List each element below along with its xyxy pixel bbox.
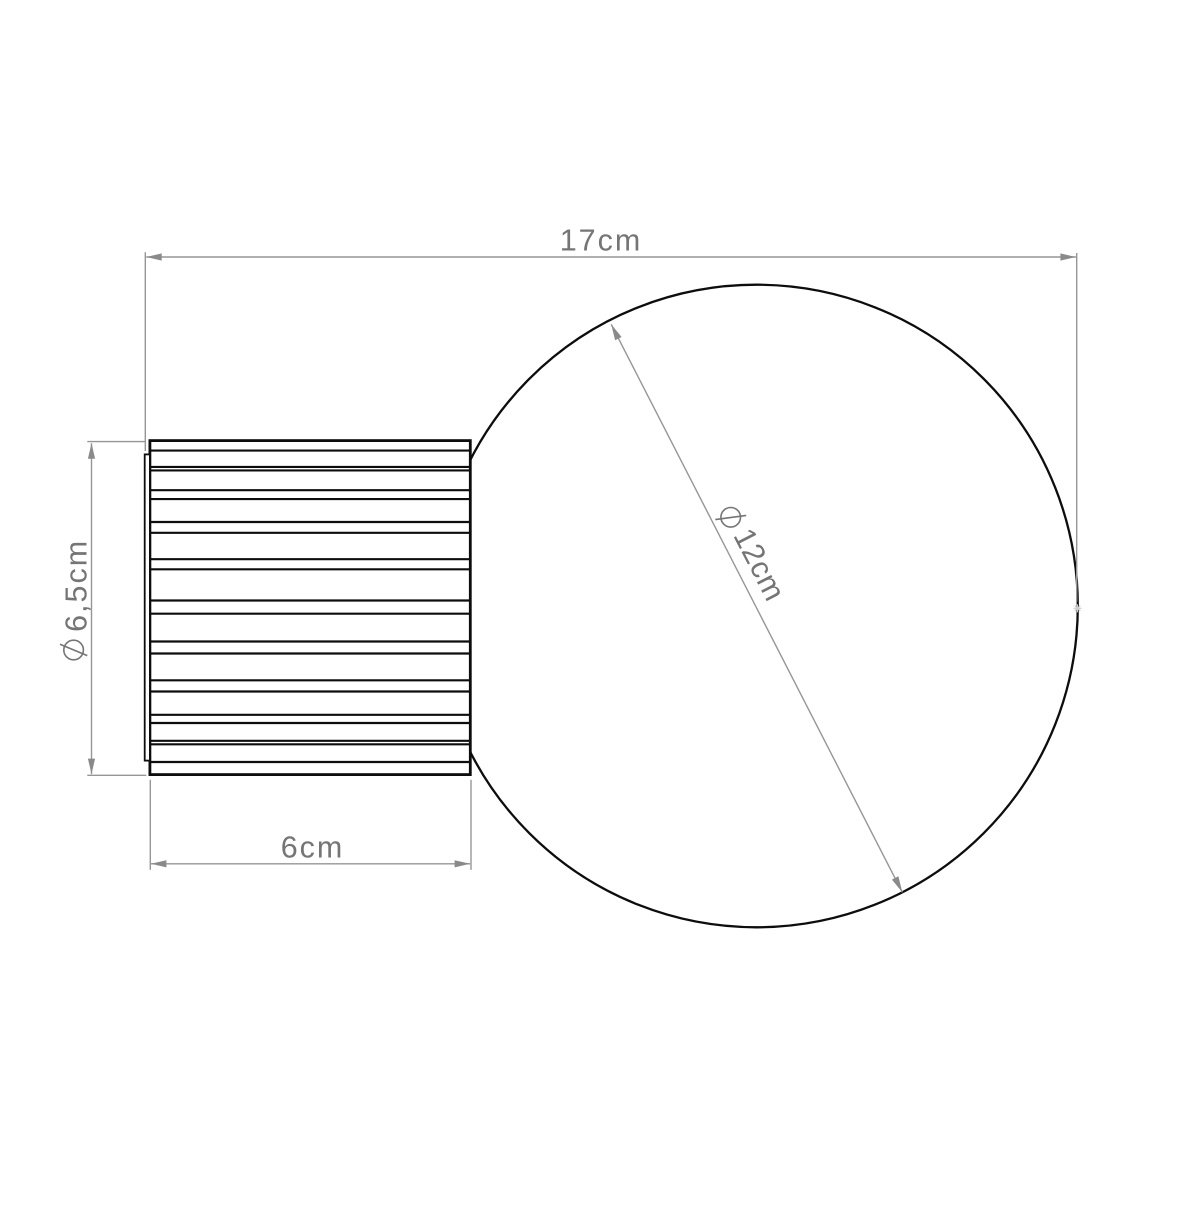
svg-text:6cm: 6cm: [281, 830, 345, 864]
svg-text:6,5cm: 6,5cm: [60, 539, 94, 632]
svg-text:17cm: 17cm: [560, 224, 643, 258]
